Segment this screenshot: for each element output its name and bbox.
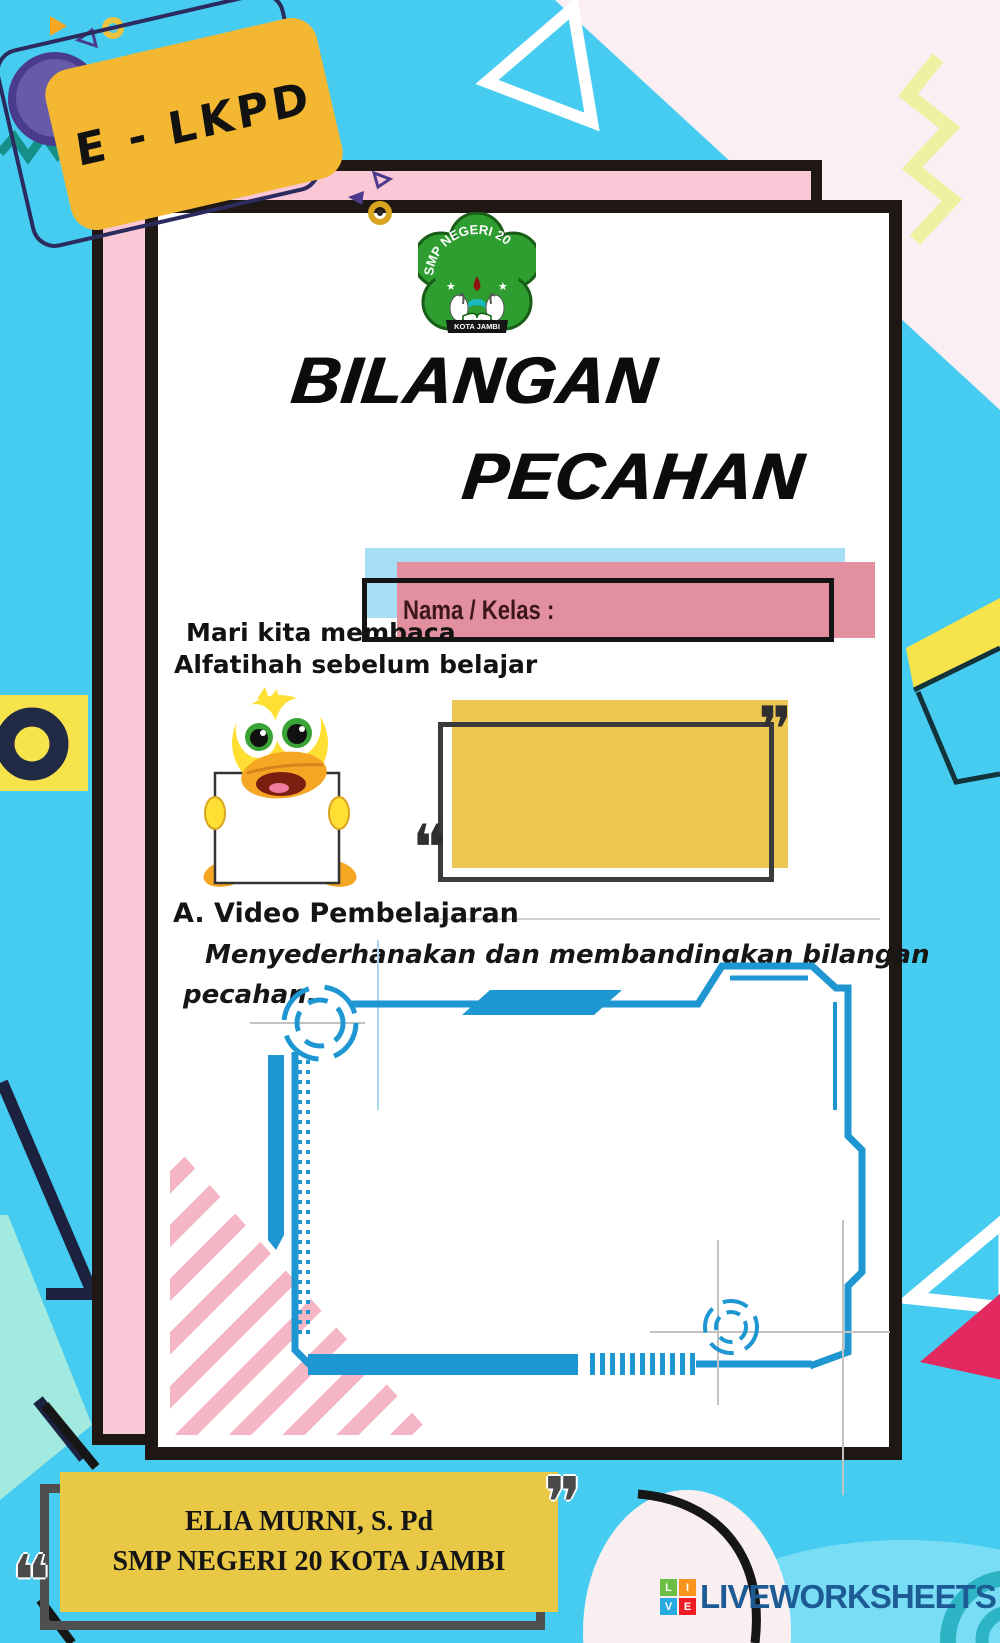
name-class-input[interactable] <box>588 595 829 625</box>
banner-quote-close-icon: ❞ <box>544 1462 582 1544</box>
white-triangle-icon <box>470 0 620 140</box>
liveworksheets-squares-icon: L I V E <box>660 1579 696 1615</box>
brand-name: LIVEWORKSHEETS <box>700 1578 996 1616</box>
liveworksheets-logo[interactable]: L I V E LIVEWORKSHEETS <box>660 1578 996 1616</box>
video-frame[interactable] <box>250 940 900 1500</box>
banner-quote-open-icon: ❝ <box>12 1540 50 1622</box>
star-icon: ★ <box>498 281 508 293</box>
logo-square: L <box>660 1579 677 1596</box>
intro-text-line2: Alfatihah sebelum belajar <box>174 650 537 679</box>
dark-donut-icon <box>0 700 90 790</box>
quote-open-icon: ❝ <box>412 812 446 886</box>
school-name: SMP NEGERI 20 KOTA JAMBI <box>112 1546 505 1578</box>
badge-label: E - LKPD <box>72 72 316 177</box>
worksheet-page: E - LKPD SMP NEGERI 20 ★ ★ KOTA JAMBI BI… <box>0 0 1000 1643</box>
play-icon <box>50 16 67 36</box>
duck-mascot-image <box>185 685 370 895</box>
quote-box-frame <box>438 722 774 882</box>
right-yellow-flag-shape <box>898 590 1000 800</box>
page-title-line1: BILANGAN <box>287 342 661 418</box>
star-icon: ★ <box>446 281 456 293</box>
teacher-name: ELIA MURNI, S. Pd <box>185 1506 433 1538</box>
logo-city-text: KOTA JAMBI <box>454 322 500 331</box>
logo-square: V <box>660 1598 677 1615</box>
quote-close-icon: ❞ <box>758 694 792 768</box>
band-mini-icons <box>340 165 400 230</box>
school-logo: SMP NEGERI 20 ★ ★ KOTA JAMBI <box>418 212 536 336</box>
yellow-zigzag-icon <box>890 50 970 250</box>
name-class-field[interactable]: Nama / Kelas : <box>362 578 834 642</box>
section-a-heading: A. Video Pembelajaran <box>173 898 519 929</box>
footer-banner: ELIA MURNI, S. Pd SMP NEGERI 20 KOTA JAM… <box>60 1472 558 1612</box>
logo-square: I <box>679 1579 696 1596</box>
page-title-line2: PECAHAN <box>458 438 808 514</box>
logo-square: E <box>679 1598 696 1615</box>
name-class-label: Nama / Kelas : <box>403 595 554 626</box>
